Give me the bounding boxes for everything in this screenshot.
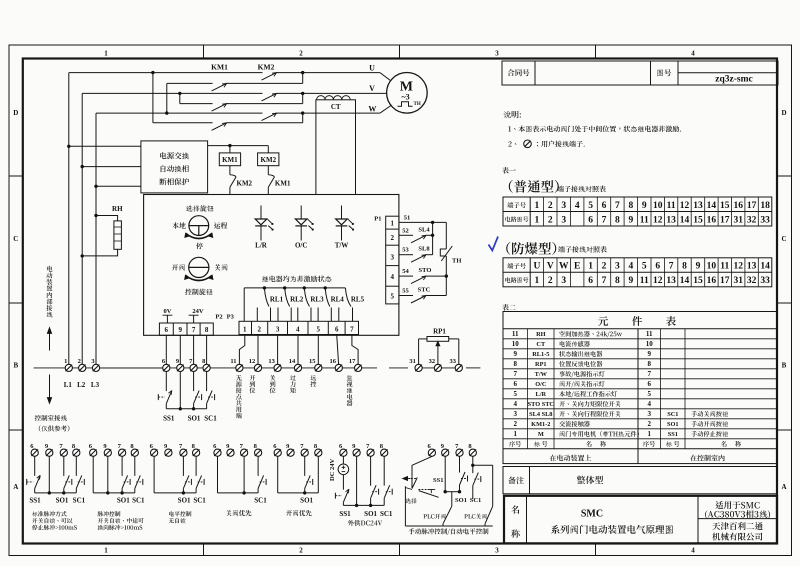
svg-text:D: D — [781, 109, 786, 117]
svg-text:3: 3 — [513, 410, 517, 418]
svg-text:14: 14 — [760, 262, 770, 272]
svg-text:B: B — [782, 362, 787, 370]
svg-text:RL1: RL1 — [270, 296, 284, 304]
svg-text:SO1: SO1 — [667, 421, 679, 428]
svg-text:M: M — [538, 431, 544, 438]
svg-text:5: 5 — [513, 390, 517, 398]
svg-text:2: 2 — [391, 234, 395, 242]
svg-text:13: 13 — [666, 215, 676, 225]
svg-text:14: 14 — [680, 276, 690, 286]
svg-text:STO STC: STO STC — [528, 401, 555, 408]
svg-text:SO1: SO1 — [178, 496, 191, 504]
svg-text:32: 32 — [429, 358, 436, 365]
svg-text:W: W — [559, 262, 569, 272]
svg-text:9: 9 — [642, 201, 647, 211]
svg-text:52: 52 — [402, 227, 409, 234]
svg-text:8: 8 — [615, 215, 620, 225]
svg-text:RL5: RL5 — [351, 296, 365, 304]
svg-text:7: 7 — [602, 276, 607, 286]
svg-text:L1: L1 — [64, 381, 73, 389]
svg-text:1: 1 — [647, 430, 651, 438]
svg-text:V: V — [369, 84, 375, 93]
svg-text:7: 7 — [602, 215, 607, 225]
svg-text:4: 4 — [296, 326, 300, 334]
svg-text:1: 1 — [64, 358, 67, 365]
svg-text:SO1: SO1 — [455, 497, 467, 504]
svg-text:U: U — [369, 64, 375, 73]
svg-text:1: 1 — [513, 430, 517, 438]
svg-text:8: 8 — [629, 201, 634, 211]
svg-text:SS1: SS1 — [668, 431, 678, 438]
svg-text:KM1: KM1 — [211, 63, 228, 72]
svg-text:15: 15 — [309, 358, 316, 365]
svg-text:7: 7 — [615, 201, 620, 211]
svg-text:6: 6 — [588, 276, 593, 286]
svg-text:31: 31 — [733, 276, 743, 286]
svg-text:3: 3 — [561, 215, 566, 225]
svg-text:2: 2 — [647, 420, 651, 428]
svg-text:1: 1 — [391, 220, 395, 228]
svg-text:2: 2 — [548, 201, 553, 211]
svg-text:55: 55 — [402, 288, 409, 295]
svg-text:U: U — [533, 262, 540, 272]
svg-text:11: 11 — [646, 330, 653, 338]
svg-text:16: 16 — [330, 358, 337, 365]
svg-text:11: 11 — [720, 262, 729, 272]
svg-text:DC 24V: DC 24V — [329, 458, 336, 481]
svg-text:2: 2 — [548, 215, 553, 225]
svg-text:31: 31 — [409, 358, 416, 365]
svg-text:2: 2 — [257, 326, 261, 334]
svg-text:13: 13 — [747, 262, 757, 272]
svg-text:13: 13 — [666, 276, 676, 286]
svg-text:D: D — [13, 109, 18, 117]
svg-text:4: 4 — [575, 201, 580, 211]
svg-text:17: 17 — [720, 215, 730, 225]
svg-text:12: 12 — [249, 358, 256, 365]
svg-text:6: 6 — [335, 326, 339, 334]
svg-text:SC1: SC1 — [254, 496, 267, 504]
svg-text:1: 1 — [535, 201, 540, 211]
svg-text:4: 4 — [391, 273, 395, 281]
svg-text:32: 32 — [747, 215, 757, 225]
svg-text:P3: P3 — [227, 314, 235, 321]
svg-text:5: 5 — [391, 292, 395, 300]
svg-text:T/W: T/W — [335, 242, 349, 250]
svg-text:6: 6 — [647, 380, 651, 388]
svg-text:KM2: KM2 — [258, 63, 275, 72]
svg-text:SC1: SC1 — [204, 414, 217, 422]
svg-text:12: 12 — [653, 215, 663, 225]
svg-text:2: 2 — [548, 276, 553, 286]
svg-text:17: 17 — [349, 358, 356, 365]
svg-text:11: 11 — [230, 358, 236, 365]
svg-text:TH: TH — [414, 102, 421, 107]
svg-text:SL4: SL4 — [418, 226, 430, 233]
svg-text:1: 1 — [243, 326, 247, 334]
svg-text:RL2: RL2 — [290, 296, 304, 304]
svg-text:5: 5 — [647, 390, 651, 398]
svg-text:7: 7 — [350, 326, 354, 334]
svg-text:7: 7 — [192, 326, 196, 334]
svg-text:6: 6 — [602, 201, 607, 211]
svg-text:W: W — [368, 105, 376, 114]
svg-text:A: A — [781, 483, 786, 491]
svg-text:KM1-2: KM1-2 — [531, 421, 550, 428]
svg-text:RL4: RL4 — [331, 296, 345, 304]
svg-text:SS1: SS1 — [29, 496, 41, 504]
svg-text:RH: RH — [112, 205, 123, 213]
svg-text:SO1: SO1 — [300, 496, 313, 504]
svg-text:1: 1 — [104, 50, 108, 58]
svg-text:2: 2 — [513, 420, 517, 428]
svg-text:0V: 0V — [164, 308, 172, 315]
svg-text:7: 7 — [669, 262, 674, 272]
svg-text:11: 11 — [512, 330, 519, 338]
svg-text:B: B — [13, 362, 18, 370]
svg-text:SC1: SC1 — [132, 496, 145, 504]
svg-text:2: 2 — [299, 547, 303, 555]
svg-text:2: 2 — [78, 358, 81, 365]
svg-text:6: 6 — [165, 326, 169, 334]
svg-text:7: 7 — [647, 370, 651, 378]
svg-text:7: 7 — [513, 370, 517, 378]
svg-text:E: E — [574, 262, 580, 272]
svg-text:54: 54 — [402, 268, 409, 275]
svg-text:8: 8 — [647, 360, 651, 368]
svg-text:SS1: SS1 — [163, 414, 175, 422]
svg-text:1: 1 — [535, 215, 540, 225]
svg-text:3: 3 — [561, 201, 566, 211]
svg-text:17: 17 — [747, 201, 757, 211]
svg-text:SL4 SL8: SL4 SL8 — [529, 411, 552, 418]
svg-text:SS1: SS1 — [433, 477, 443, 484]
svg-text:1: 1 — [535, 276, 540, 286]
svg-text:SS1: SS1 — [339, 510, 351, 518]
svg-text:3: 3 — [495, 547, 499, 555]
svg-text:KM2: KM2 — [261, 156, 277, 164]
svg-text:10: 10 — [707, 262, 717, 272]
svg-text:RL3: RL3 — [310, 296, 324, 304]
svg-text:33: 33 — [450, 358, 457, 365]
svg-text:RP1: RP1 — [535, 361, 547, 368]
svg-text:V: V — [547, 262, 554, 272]
svg-text:12: 12 — [653, 276, 663, 286]
svg-text:3: 3 — [615, 262, 620, 272]
svg-text:L3: L3 — [91, 381, 100, 389]
svg-text:9: 9 — [179, 326, 183, 334]
svg-text:13: 13 — [693, 201, 703, 211]
svg-text:14: 14 — [680, 215, 690, 225]
svg-text:2: 2 — [299, 50, 303, 58]
svg-text:SC1: SC1 — [470, 497, 482, 504]
svg-text:STC: STC — [418, 287, 431, 294]
svg-text:SC1: SC1 — [73, 496, 86, 504]
svg-text:1: 1 — [588, 262, 593, 272]
svg-text:4: 4 — [513, 400, 517, 408]
svg-text:53: 53 — [402, 247, 409, 254]
svg-text:C: C — [13, 235, 18, 243]
svg-text:15: 15 — [720, 201, 730, 211]
svg-text:10: 10 — [653, 201, 663, 211]
svg-text:6: 6 — [513, 380, 517, 388]
svg-text:KM1: KM1 — [275, 180, 291, 188]
svg-text:3: 3 — [561, 276, 566, 286]
svg-text:13: 13 — [268, 358, 275, 365]
svg-text:RL1-5: RL1-5 — [532, 351, 549, 358]
svg-text:15: 15 — [693, 215, 703, 225]
svg-text:L2: L2 — [77, 381, 86, 389]
svg-text:TH: TH — [452, 258, 461, 265]
svg-text:32: 32 — [747, 276, 757, 286]
svg-text:1: 1 — [104, 547, 108, 555]
svg-text:A: A — [13, 483, 18, 491]
svg-text:L/R: L/R — [255, 242, 268, 250]
svg-text:33: 33 — [760, 276, 770, 286]
svg-text:KM2: KM2 — [237, 180, 253, 188]
svg-text:8: 8 — [615, 276, 620, 286]
svg-text:6: 6 — [588, 215, 593, 225]
svg-text:8: 8 — [205, 326, 209, 334]
svg-text:zq3z-smc: zq3z-smc — [715, 75, 752, 85]
svg-text:L/R: L/R — [536, 391, 547, 398]
svg-text:4: 4 — [691, 547, 695, 555]
svg-text:8: 8 — [513, 360, 517, 368]
svg-text:CT: CT — [331, 103, 341, 111]
svg-text:17: 17 — [720, 276, 730, 286]
svg-text:SO1: SO1 — [56, 496, 69, 504]
svg-text:5: 5 — [642, 262, 647, 272]
svg-text:STO: STO — [419, 267, 432, 274]
svg-text:3: 3 — [647, 410, 651, 418]
svg-text:14: 14 — [707, 201, 717, 211]
svg-text:SC1: SC1 — [380, 510, 393, 518]
svg-text:11: 11 — [667, 201, 676, 211]
svg-text:24V: 24V — [192, 308, 204, 315]
svg-text:T/W: T/W — [535, 371, 548, 378]
svg-text:SMC: SMC — [581, 509, 603, 520]
svg-text:33: 33 — [760, 215, 770, 225]
svg-text:6: 6 — [655, 262, 660, 272]
svg-text:5: 5 — [588, 201, 593, 211]
svg-text:SO1: SO1 — [364, 510, 377, 518]
svg-text:15: 15 — [693, 276, 703, 286]
svg-text:10: 10 — [646, 340, 654, 348]
svg-text:O/C: O/C — [535, 381, 547, 388]
svg-text:C: C — [781, 235, 786, 243]
svg-text:SL8: SL8 — [418, 246, 430, 253]
svg-text:16: 16 — [707, 276, 717, 286]
svg-text:SC1: SC1 — [667, 411, 678, 418]
svg-text:4: 4 — [691, 50, 695, 58]
svg-text:O/C: O/C — [295, 242, 307, 250]
svg-text:16: 16 — [733, 201, 743, 211]
svg-text:11: 11 — [640, 276, 649, 286]
svg-text:3: 3 — [391, 254, 395, 262]
svg-text:KM1: KM1 — [222, 156, 238, 164]
svg-text:~3: ~3 — [402, 93, 410, 102]
svg-text:51: 51 — [404, 214, 411, 221]
svg-text:11: 11 — [640, 215, 649, 225]
svg-text:2: 2 — [602, 262, 607, 272]
svg-text:16: 16 — [707, 215, 717, 225]
svg-text:12: 12 — [733, 262, 743, 272]
svg-text:12: 12 — [680, 201, 690, 211]
svg-text:9: 9 — [647, 350, 651, 358]
svg-text:SO1: SO1 — [188, 414, 201, 422]
svg-text:8: 8 — [682, 262, 687, 272]
svg-text:3: 3 — [276, 326, 280, 334]
svg-text:P1: P1 — [374, 216, 381, 223]
svg-text:10: 10 — [512, 340, 520, 348]
svg-text:CT: CT — [536, 341, 546, 348]
svg-text:9: 9 — [696, 262, 701, 272]
svg-text:4: 4 — [629, 262, 634, 272]
svg-text:5: 5 — [316, 326, 320, 334]
svg-text:SO1: SO1 — [117, 496, 130, 504]
svg-text:P2: P2 — [215, 314, 222, 321]
svg-text:4: 4 — [647, 400, 651, 408]
svg-text:SC1: SC1 — [193, 496, 206, 504]
svg-text:9: 9 — [629, 276, 634, 286]
svg-text:31: 31 — [733, 215, 743, 225]
svg-text:18: 18 — [760, 201, 770, 211]
svg-text:9: 9 — [629, 215, 634, 225]
svg-text:RH: RH — [536, 331, 546, 338]
svg-text:3: 3 — [495, 50, 499, 58]
svg-text:9: 9 — [513, 350, 517, 358]
svg-text:RP1: RP1 — [433, 328, 446, 336]
svg-text:14: 14 — [289, 358, 296, 365]
